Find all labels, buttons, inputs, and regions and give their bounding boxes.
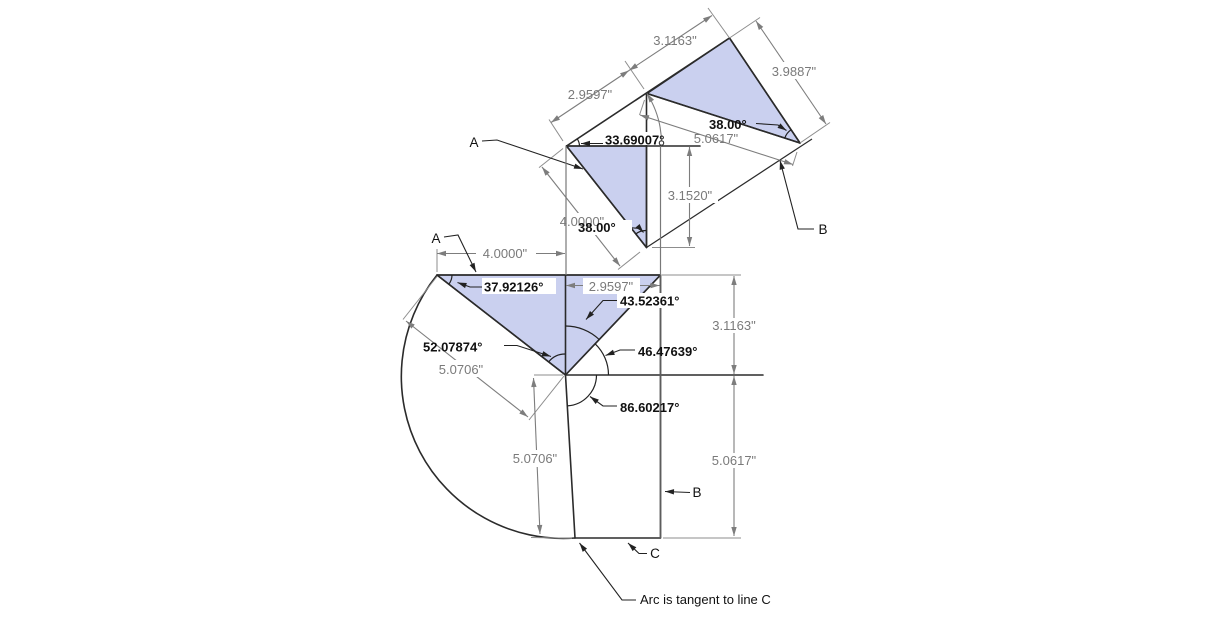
ext-line xyxy=(730,18,761,39)
dim-text-5.0617-lower: 5.0617" xyxy=(712,453,757,468)
cad-drawing-page: 2.9597" 3.1163" 3.9887" 5.0617" 3.1520" … xyxy=(0,0,1230,624)
angle-text-38-corner: 38.00° xyxy=(709,117,747,132)
dim-text-5.0706-drop: 5.0706" xyxy=(513,451,558,466)
arc-endpoint-marker xyxy=(659,141,663,145)
leader-B-upper xyxy=(780,161,814,230)
dim-text-3.1163-upper: 3.1163" xyxy=(653,33,697,48)
dim-text-5.0706-hyp: 5.0706" xyxy=(439,362,484,377)
angle-text-37.92126: 37.92126° xyxy=(484,280,543,295)
angle-text-33.69007: 33.69007° xyxy=(605,133,664,148)
ext-line xyxy=(625,61,644,89)
leader-46.47639 xyxy=(606,350,636,356)
label-A-lower: A xyxy=(431,231,440,246)
ext-line xyxy=(800,123,830,144)
arc-33.69007 xyxy=(577,139,579,146)
leader-86.60217 xyxy=(590,397,617,407)
dim-text-2.9597-lower: 2.9597" xyxy=(589,279,634,294)
dim-text-3.1163-lower: 3.1163" xyxy=(712,318,756,333)
dim-text-3.1520: 3.1520" xyxy=(668,188,713,203)
angle-text-52.07874: 52.07874° xyxy=(423,340,482,355)
dim-text-4.0000-lower: 4.0000" xyxy=(483,246,528,261)
angle-text-43.52361: 43.52361° xyxy=(620,294,679,309)
ext-line xyxy=(618,252,640,270)
angle-text-46.47639: 46.47639° xyxy=(638,344,697,359)
label-A-upper: A xyxy=(469,135,478,150)
leader-C xyxy=(628,543,647,554)
dim-text-5.0617-upper: 5.0617" xyxy=(694,131,739,146)
dimension-lines xyxy=(403,8,830,538)
ext-line xyxy=(549,120,563,142)
label-B-upper: B xyxy=(818,222,827,237)
arc-46.47639 xyxy=(595,344,608,375)
angle-text-38-apex: 38.00° xyxy=(578,220,616,235)
ext-line xyxy=(403,277,437,320)
cad-drawing-canvas: 2.9597" 3.1163" 3.9887" 5.0617" 3.1520" … xyxy=(0,0,1230,624)
tangent-note-text: Arc is tangent to line C xyxy=(640,592,771,607)
leader-B-lower xyxy=(665,492,690,493)
arc-86.60217 xyxy=(567,375,596,406)
angle-text-86.60217: 86.60217° xyxy=(620,400,679,415)
ext-line xyxy=(531,538,572,539)
dim-text-3.9887: 3.9887" xyxy=(772,64,817,79)
label-C: C xyxy=(650,546,660,561)
ext-line xyxy=(640,100,645,115)
label-B-lower: B xyxy=(692,485,701,500)
ext-line xyxy=(708,8,730,38)
left-slanted-edge xyxy=(566,375,576,538)
dim-text-2.9597-upper: 2.9597" xyxy=(568,87,613,102)
leader-tangent-note xyxy=(580,543,637,600)
ext-line xyxy=(793,152,798,166)
